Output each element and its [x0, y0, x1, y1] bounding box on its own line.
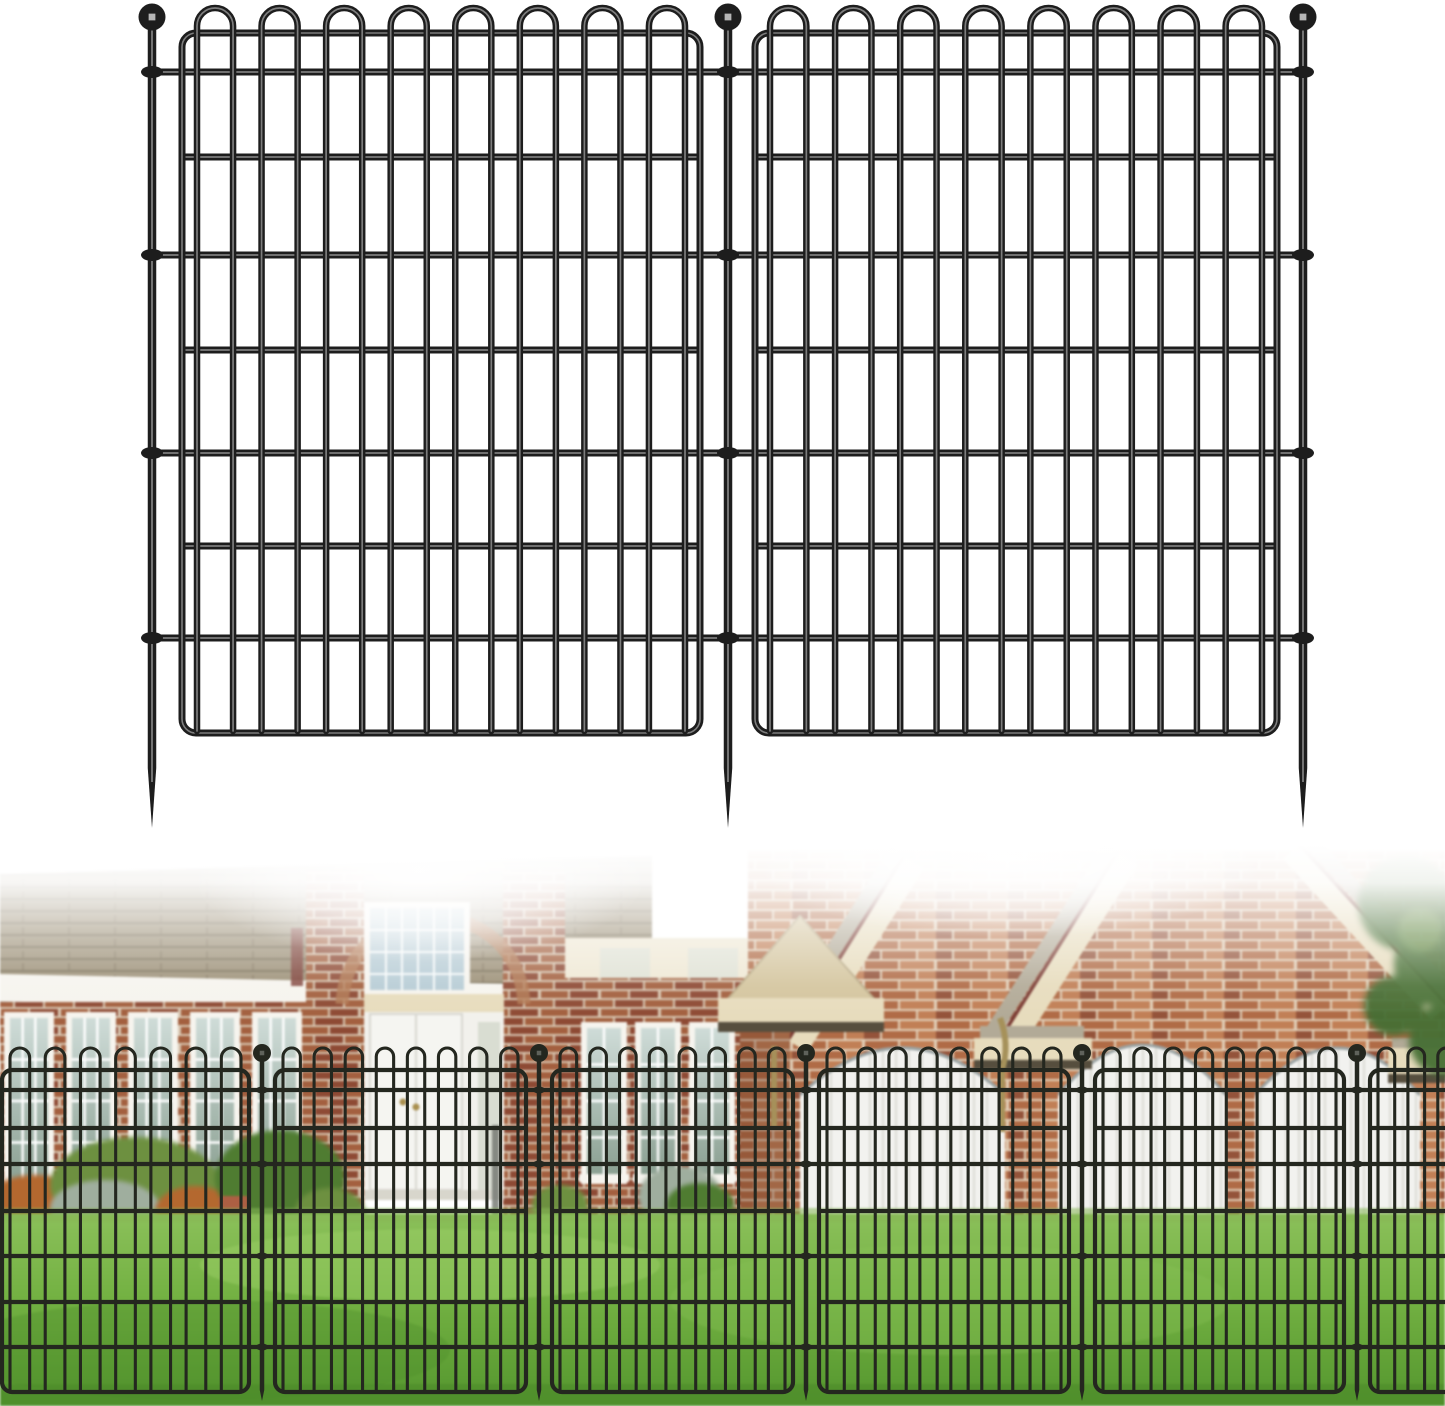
fence-stake [715, 4, 742, 829]
fence-loop-wire-highlight [455, 8, 491, 731]
stake-rail-clamp [533, 1161, 545, 1168]
window-sill [579, 1174, 629, 1182]
stake-rail-clamp [256, 1253, 268, 1260]
fence-loop-wire-highlight [965, 8, 1001, 731]
fence-loop-wire-highlight [197, 8, 233, 731]
fence-loop-wire-highlight [1161, 8, 1197, 731]
ball-finial-glint [537, 1051, 542, 1056]
fence-loop-wire [1030, 8, 1066, 731]
stake-rail-clamp [256, 1344, 268, 1351]
garage-door [800, 1048, 1005, 1223]
ball-finial-glint [149, 14, 156, 21]
stake-rail-clamp [800, 1161, 812, 1168]
installed-fence-photo [0, 845, 1445, 1406]
ball-finial-glint [1080, 1051, 1085, 1056]
stake-rail-clamp [800, 1344, 812, 1351]
fence-loop-wire [326, 8, 362, 731]
door-knob [400, 1099, 407, 1106]
fence-loop-wire-highlight [391, 8, 427, 731]
fence-illustration-group [139, 4, 1317, 829]
downspout [771, 1046, 777, 1128]
stake-rail-clamp [141, 447, 163, 459]
fence-loop-wire-highlight [900, 8, 936, 731]
fence-loop-wire-highlight [1226, 8, 1262, 731]
fence-stake [1290, 4, 1317, 829]
ball-finial-glint [725, 14, 732, 21]
stake-rail-clamp [1076, 1253, 1088, 1260]
fence-loop-wire [1095, 8, 1131, 731]
stake-rail-clamp [1076, 1344, 1088, 1351]
stake-rail-clamp [533, 1253, 545, 1260]
stake-rail-clamp [256, 1161, 268, 1168]
stake-rail-clamp [1292, 447, 1314, 459]
fence-loop-wire [455, 8, 491, 731]
stake-rail-clamp [717, 447, 739, 459]
stake-rail-clamp [1076, 1087, 1088, 1094]
stake-rail-clamp [1292, 249, 1314, 261]
fence-loop-wire [197, 8, 233, 731]
fence-loop-wire [649, 8, 685, 731]
stake-rail-clamp [141, 249, 163, 261]
fence-loop-wire [900, 8, 936, 731]
fence-loop-wire-highlight [835, 8, 871, 731]
stake-rail-clamp [717, 249, 739, 261]
stake-rail-clamp [141, 66, 163, 78]
stake-rail-clamp [1351, 1344, 1363, 1351]
fence-loop-wire [770, 8, 806, 731]
stake-rail-clamp [1351, 1253, 1363, 1260]
product-image [0, 0, 1445, 1406]
fence-loop-wire [1161, 8, 1197, 731]
stake-rail-clamp [533, 1087, 545, 1094]
window [579, 1022, 629, 1184]
stake-rail-clamp [717, 632, 739, 644]
fence-loop-wire [584, 8, 620, 731]
stake-rail-clamp [800, 1087, 812, 1094]
fence-loop-wire [835, 8, 871, 731]
stake-rail-clamp [1351, 1087, 1363, 1094]
stake-rail-clamp [1292, 632, 1314, 644]
ball-finial-glint [1355, 1051, 1360, 1056]
ball-finial-glint [260, 1051, 265, 1056]
lawn [0, 1208, 1445, 1406]
stake-rail-clamp [141, 632, 163, 644]
fence-loop-wire [965, 8, 1001, 731]
fence-loop-wire [1226, 8, 1262, 731]
stake-rail-clamp [800, 1253, 812, 1260]
fence-loop-wire [391, 8, 427, 731]
ball-finial-glint [804, 1051, 809, 1056]
stake-rail-clamp [1351, 1161, 1363, 1168]
window [633, 1022, 683, 1184]
fence-loop-wire-highlight [1095, 8, 1131, 731]
fence-loop-wire-highlight [770, 8, 806, 731]
stake-rail-clamp [533, 1344, 545, 1351]
fence-loop-wire-highlight [520, 8, 556, 731]
fence-loop-wire-highlight [262, 8, 298, 731]
stake-rail-clamp [717, 66, 739, 78]
door-knob [413, 1104, 420, 1111]
stake-rail-clamp [1076, 1161, 1088, 1168]
stake-rail-clamp [256, 1087, 268, 1094]
fence-illustration [0, 0, 1445, 845]
garage-brick-pier [1226, 1070, 1255, 1223]
entry-step [364, 1190, 504, 1200]
fence-stake [139, 4, 166, 829]
stake-rail-clamp [1292, 66, 1314, 78]
fence-loop-wire [520, 8, 556, 731]
fence-loop-wire-highlight [326, 8, 362, 731]
mid-window-band [579, 1022, 737, 1184]
ball-finial-glint [1300, 14, 1307, 21]
fence-loop-wire-highlight [584, 8, 620, 731]
fence-loop-wire [262, 8, 298, 731]
fence-loop-wire-highlight [1030, 8, 1066, 731]
fence-loop-wire-highlight [649, 8, 685, 731]
